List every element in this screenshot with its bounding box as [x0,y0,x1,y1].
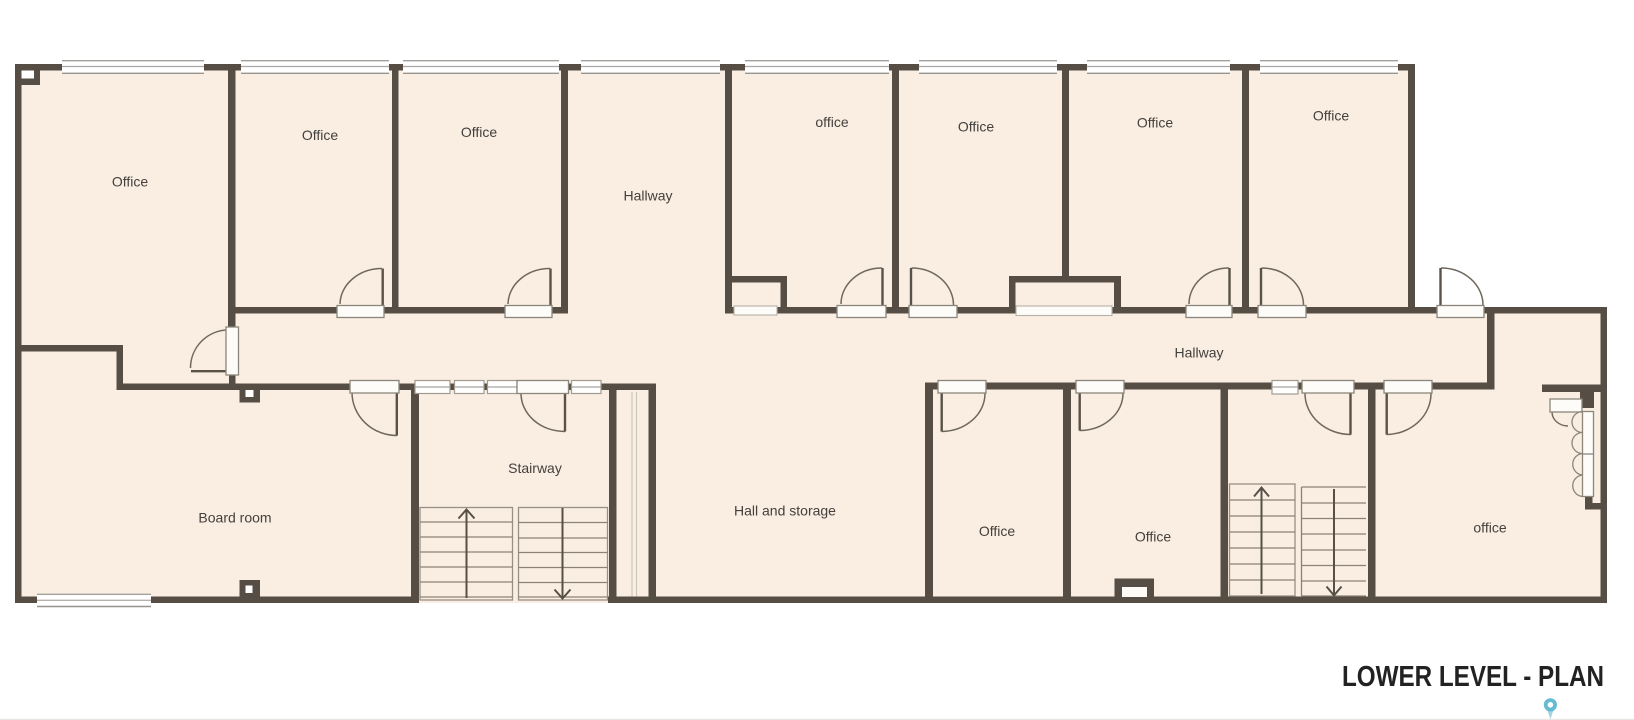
svg-text:Hallway: Hallway [623,188,672,204]
svg-text:Office: Office [979,523,1016,539]
svg-text:LOWER LEVEL - PLAN: LOWER LEVEL - PLAN [1342,661,1604,693]
svg-text:Office: Office [1137,115,1174,131]
svg-text:Board room: Board room [198,510,271,526]
svg-text:Office: Office [1135,529,1172,545]
svg-text:Stairway: Stairway [508,460,562,476]
svg-text:Office: Office [1313,108,1350,124]
svg-text:Office: Office [958,119,995,135]
svg-text:Hall and storage: Hall and storage [734,503,836,519]
svg-text:office: office [1473,520,1506,536]
svg-text:Office: Office [112,174,149,190]
svg-text:office: office [815,114,848,130]
svg-text:Office: Office [461,124,498,140]
svg-text:Hallway: Hallway [1174,345,1223,361]
svg-text:Office: Office [302,127,339,143]
